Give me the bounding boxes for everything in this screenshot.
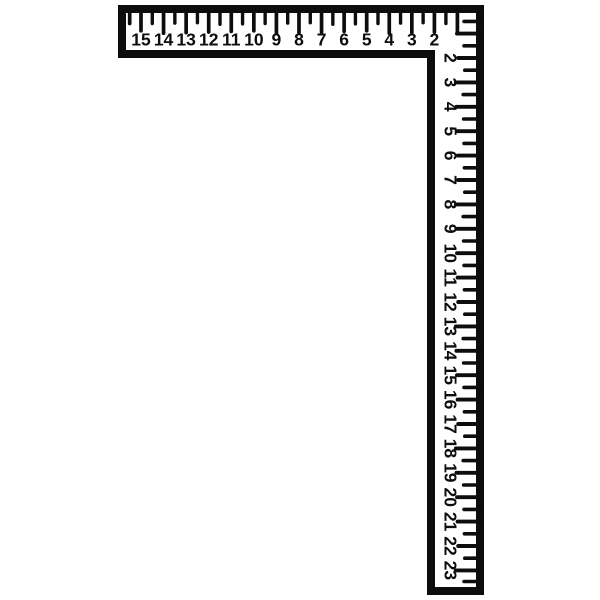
canvas: 15141312111098765432 2345678910111213141… <box>0 0 600 600</box>
h-ruler-number-13: 13 <box>176 30 196 50</box>
v-ruler-number-14: 14 <box>441 341 461 361</box>
v-ruler-number-3: 3 <box>441 78 461 88</box>
h-ruler-number-10: 10 <box>244 30 264 50</box>
square-outline <box>122 9 480 591</box>
h-ruler-number-12: 12 <box>199 30 219 50</box>
vertical-ruler-numbers: 234567891011121314151617181920212223 <box>441 53 461 580</box>
v-ruler-number-19: 19 <box>441 463 461 483</box>
v-ruler-number-15: 15 <box>441 365 461 385</box>
v-ruler-number-17: 17 <box>441 414 461 433</box>
v-ruler-number-8: 8 <box>441 200 461 210</box>
v-ruler-number-2: 2 <box>441 53 461 63</box>
v-ruler-number-12: 12 <box>441 292 461 312</box>
h-ruler-number-15: 15 <box>131 30 151 50</box>
horizontal-ruler-numbers: 15141312111098765432 <box>131 30 439 50</box>
h-ruler-number-2: 2 <box>430 30 440 50</box>
v-ruler-number-4: 4 <box>441 102 461 112</box>
v-ruler-number-21: 21 <box>441 512 461 532</box>
v-ruler-number-10: 10 <box>441 243 461 263</box>
v-ruler-number-7: 7 <box>441 175 461 185</box>
framing-square-figure: 15141312111098765432 2345678910111213141… <box>0 0 600 600</box>
v-ruler-number-16: 16 <box>441 390 461 410</box>
h-ruler-number-8: 8 <box>294 30 304 50</box>
h-ruler-number-7: 7 <box>317 30 327 50</box>
v-ruler-number-13: 13 <box>441 317 461 337</box>
h-ruler-number-11: 11 <box>222 30 241 50</box>
h-ruler-number-4: 4 <box>384 30 394 50</box>
v-ruler-number-23: 23 <box>441 561 461 581</box>
h-ruler-number-5: 5 <box>362 30 372 50</box>
v-ruler-number-5: 5 <box>441 126 461 136</box>
h-ruler-number-6: 6 <box>339 30 349 50</box>
v-ruler-number-6: 6 <box>441 151 461 161</box>
h-ruler-number-14: 14 <box>154 30 174 50</box>
v-ruler-number-11: 11 <box>441 268 461 287</box>
v-ruler-number-22: 22 <box>441 536 461 556</box>
v-ruler-number-20: 20 <box>441 487 461 507</box>
h-ruler-number-3: 3 <box>407 30 417 50</box>
v-ruler-number-9: 9 <box>441 224 461 234</box>
v-ruler-number-18: 18 <box>441 439 461 459</box>
h-ruler-number-9: 9 <box>272 30 282 50</box>
